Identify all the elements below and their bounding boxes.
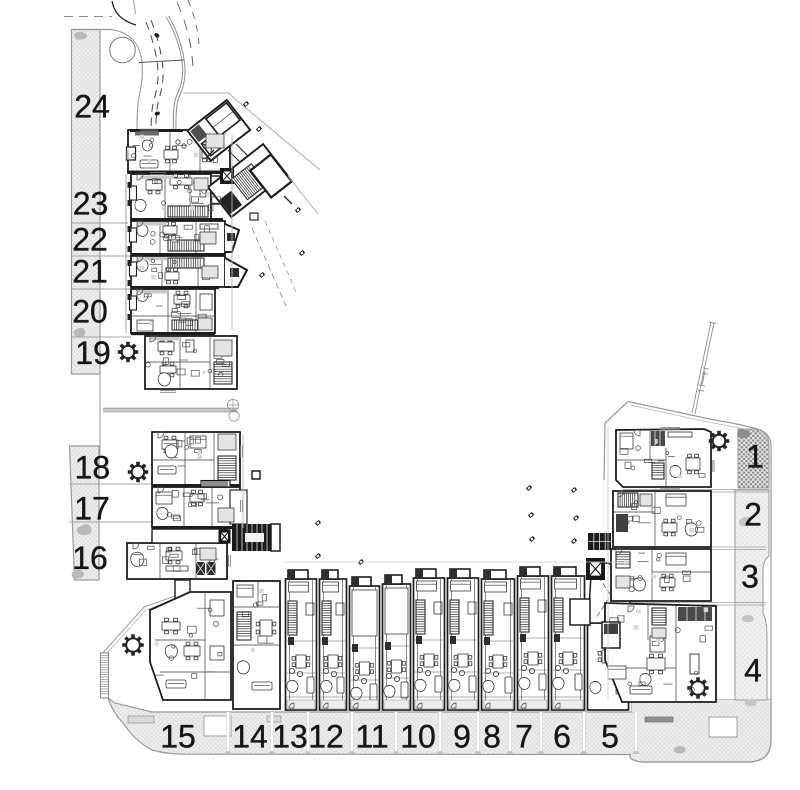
svg-text:1: 1 (746, 439, 764, 475)
svg-text:17: 17 (74, 491, 110, 527)
svg-text:5: 5 (601, 719, 619, 755)
svg-text:11: 11 (355, 719, 388, 755)
svg-text:24: 24 (74, 88, 110, 124)
svg-text:18: 18 (75, 450, 111, 486)
svg-text:22: 22 (72, 222, 108, 258)
svg-text:8: 8 (483, 719, 501, 755)
svg-text:12: 12 (308, 719, 344, 755)
svg-text:16: 16 (72, 540, 108, 576)
svg-text:10: 10 (400, 719, 436, 755)
svg-text:23: 23 (73, 186, 109, 222)
svg-text:15: 15 (160, 719, 196, 755)
svg-text:9: 9 (453, 719, 471, 755)
svg-text:2: 2 (744, 497, 762, 533)
svg-text:20: 20 (72, 294, 108, 330)
svg-text:19: 19 (75, 335, 111, 371)
svg-text:3: 3 (741, 559, 759, 595)
svg-text:6: 6 (553, 719, 571, 755)
svg-text:4: 4 (744, 653, 762, 689)
svg-text:13: 13 (272, 719, 308, 755)
svg-text:21: 21 (72, 254, 108, 290)
svg-text:14: 14 (232, 719, 268, 755)
svg-text:7: 7 (515, 719, 533, 755)
